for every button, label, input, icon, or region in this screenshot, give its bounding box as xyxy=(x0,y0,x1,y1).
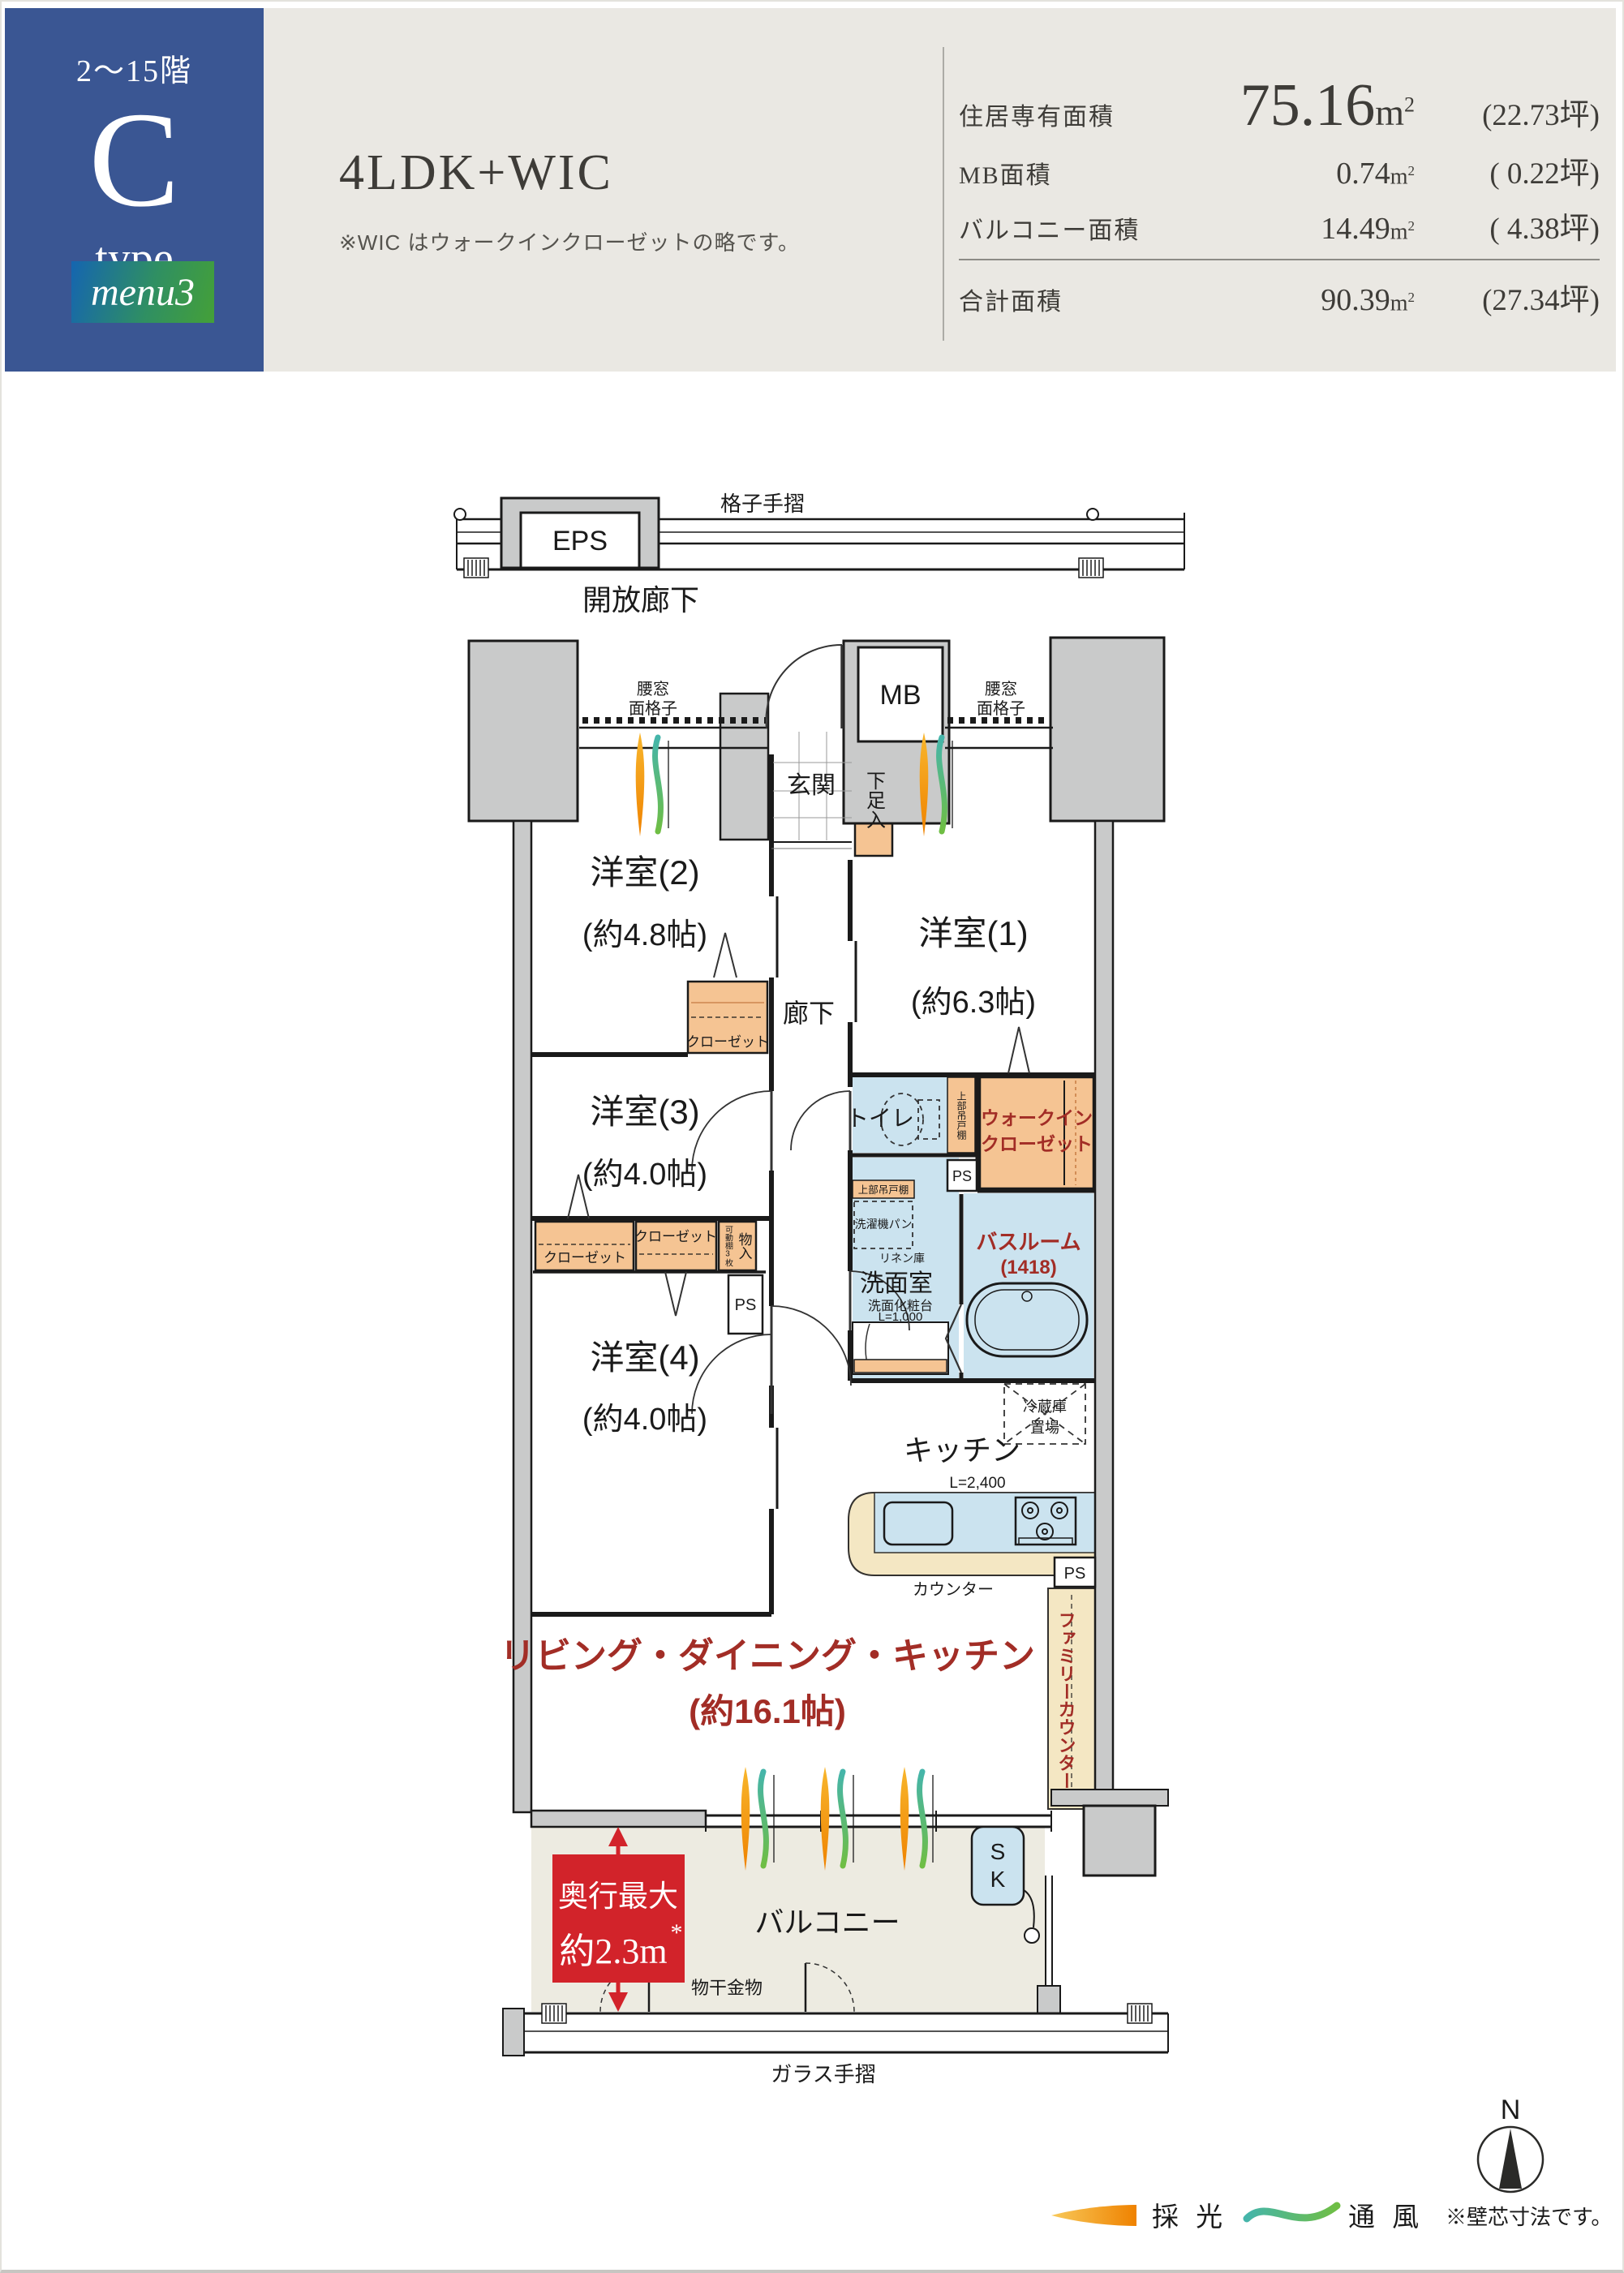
legend: 採 光 通 風 ※壁芯寸法です。 xyxy=(1051,2202,1612,2232)
closet-door-mark xyxy=(714,933,737,978)
east-wall xyxy=(1095,821,1113,1791)
type-badge: 2〜15階 C type menu3 xyxy=(5,8,264,372)
label-corridor: 廊下 xyxy=(783,999,835,1028)
header: 2〜15階 C type menu3 4LDK+WIC ※WIC はウォークイン… xyxy=(8,8,1616,372)
ventilation-icon xyxy=(1247,2206,1337,2219)
type-letter: C xyxy=(5,92,264,228)
area-value: 75.16 xyxy=(1240,71,1376,140)
legend-daylight: 採 光 xyxy=(1152,2202,1227,2232)
label-bedroom2-size: (約4.8帖) xyxy=(582,918,707,952)
label-washer-pan: 洗濯機パン xyxy=(855,1218,913,1231)
label-glass-rail: ガラス手摺 xyxy=(771,2062,875,2086)
area-tsubo: ( 4.38坪) xyxy=(1415,204,1600,247)
area-label: バルコニー面積 xyxy=(959,210,1178,246)
entrance-jamb xyxy=(720,694,768,840)
label-ldk: リビング・ダイニング・キッチン xyxy=(500,1636,1035,1676)
area-table: 住居専有面積 75.16 m2 (22.73坪) MB面積 0.74 m2 ( … xyxy=(959,71,1600,330)
area-label: 住居専有面積 xyxy=(959,97,1178,132)
label-family-counter: ファミリーカウンター xyxy=(1056,1611,1076,1790)
label-linen: リネン庫 xyxy=(879,1252,925,1265)
divider-post xyxy=(1038,1986,1060,2013)
area-unit: m2 xyxy=(1390,290,1415,316)
north-arrow-icon xyxy=(1499,2129,1522,2189)
railing-post-icon xyxy=(1128,2004,1152,2023)
table-divider xyxy=(959,259,1600,260)
layout-title: 4LDK+WIC xyxy=(339,144,800,202)
railing-post xyxy=(503,2009,524,2056)
railing-post-icon xyxy=(1079,558,1103,578)
area-unit: m2 xyxy=(1390,163,1415,190)
column xyxy=(469,641,578,821)
label-mb: MB xyxy=(880,680,922,711)
area-value: 90.39 xyxy=(1321,282,1390,318)
depth-line2: 約2.3m xyxy=(559,1931,667,1971)
label-washroom: 洗面室 xyxy=(860,1270,933,1297)
area-label: MB面積 xyxy=(959,155,1178,191)
label-ps: PS xyxy=(952,1168,972,1184)
label-hanging-cupboard: 上部吊戸棚 xyxy=(956,1091,967,1141)
label-counter: カウンター xyxy=(913,1580,994,1599)
legend-ventilation: 通 風 xyxy=(1348,2202,1424,2232)
area-value: 14.49 xyxy=(1321,211,1390,247)
label-fridge: 冷蔵庫 xyxy=(1023,1399,1067,1415)
label-kitchen: キッチン xyxy=(904,1433,1020,1467)
label-window1: 腰窓 xyxy=(637,680,669,698)
label-hanging-cupboard2: 上部吊戸棚 xyxy=(858,1184,909,1196)
label-monoire: 物入 xyxy=(737,1232,753,1260)
area-label: 合計面積 xyxy=(959,281,1178,317)
label-bedroom4: 洋室(4) xyxy=(590,1338,699,1377)
header-divider xyxy=(943,47,944,341)
label-toilet: トイレ xyxy=(846,1106,914,1131)
table-row: バルコニー面積 14.49 m2 ( 4.38坪) xyxy=(959,204,1600,247)
column xyxy=(1050,638,1164,821)
label-eps: EPS xyxy=(552,526,608,556)
label-shoe-cabinet: 下足入 xyxy=(863,771,886,829)
daylight-icon xyxy=(1051,2205,1136,2226)
table-row-total: 合計面積 90.39 m2 (27.34坪) xyxy=(959,275,1600,319)
table-row: MB面積 0.74 m2 ( 0.22坪) xyxy=(959,148,1600,192)
label-ldk-size: (約16.1帖) xyxy=(689,1692,846,1730)
open-corridor: EPS 格子手摺 開放廊下 xyxy=(454,492,1184,617)
label-ps: PS xyxy=(735,1296,757,1314)
closet-door-mark xyxy=(665,1272,686,1316)
label-shelf: 可動棚3枚 xyxy=(724,1226,733,1268)
label-genkan: 玄関 xyxy=(787,772,836,799)
area-unit: m2 xyxy=(1375,91,1415,134)
label-window1: 面格子 xyxy=(629,699,677,718)
label-bathroom-size: (1418) xyxy=(1000,1257,1056,1278)
label-vanity-size: L=1,000 xyxy=(879,1310,923,1324)
area-value: 0.74 xyxy=(1336,156,1390,191)
area-tsubo: (22.73坪) xyxy=(1415,90,1600,134)
floor-range: 2〜15階 xyxy=(5,45,264,90)
label-sk-2: K xyxy=(990,1867,1006,1892)
label-window2: 腰窓 xyxy=(985,680,1017,698)
area-tsubo: ( 0.22坪) xyxy=(1415,148,1600,192)
label-closet-a: クローゼット xyxy=(686,1034,769,1050)
legend-note: ※壁芯寸法です。 xyxy=(1446,2205,1612,2229)
label-laundry-hardware: 物干金物 xyxy=(691,1978,763,1998)
north-label: N xyxy=(1501,2095,1521,2125)
label-lattice-rail: 格子手摺 xyxy=(720,492,805,516)
label-bedroom3-size: (約4.0帖) xyxy=(582,1158,707,1192)
label-ps: PS xyxy=(1064,1565,1086,1583)
neighbor-wall xyxy=(1051,1790,1168,1806)
railing-post-icon xyxy=(464,558,488,578)
title-block: 4LDK+WIC ※WIC はウォークインクローゼットの略です。 xyxy=(339,144,800,256)
label-closet-c: クローゼット xyxy=(634,1229,717,1244)
north-indicator: N xyxy=(1478,2095,1543,2192)
label-bedroom3: 洋室(3) xyxy=(590,1093,699,1131)
label-bedroom1: 洋室(1) xyxy=(918,914,1028,952)
label-wic: クローゼット xyxy=(981,1133,1093,1154)
closet-door-mark xyxy=(1008,1027,1029,1073)
depth-asterisk: * xyxy=(671,1919,683,1946)
south-wall xyxy=(531,1811,706,1827)
label-bathroom: バスルーム xyxy=(976,1230,1081,1254)
label-open-corridor: 開放廊下 xyxy=(582,583,699,617)
table-row: 住居専有面積 75.16 m2 (22.73坪) xyxy=(959,71,1600,140)
label-bedroom1-size: (約6.3帖) xyxy=(911,986,1036,1020)
label-sk: S xyxy=(990,1839,1006,1864)
label-closet-b: クローゼット xyxy=(543,1250,626,1265)
label-bedroom2: 洋室(2) xyxy=(590,853,699,892)
label-counter-length: L=2,400 xyxy=(949,1475,1005,1492)
railing-post-icon xyxy=(542,2004,566,2023)
label-wic: ウォークイン xyxy=(981,1107,1093,1128)
label-bedroom4-size: (約4.0帖) xyxy=(582,1403,707,1437)
menu-ribbon: menu3 xyxy=(71,261,214,323)
area-tsubo: (27.34坪) xyxy=(1415,275,1600,319)
label-balcony: バルコニー xyxy=(754,1906,900,1939)
label-window2: 面格子 xyxy=(977,699,1025,718)
area-unit: m2 xyxy=(1390,218,1415,245)
layout-note: ※WIC はウォークインクローゼットの略です。 xyxy=(339,226,800,256)
label-fridge-2: 置場 xyxy=(1030,1420,1059,1436)
depth-line1: 奥行最大 xyxy=(558,1880,678,1914)
column xyxy=(1084,1806,1155,1876)
floor-plan: EPS 格子手摺 開放廊下 xyxy=(0,372,1624,2273)
